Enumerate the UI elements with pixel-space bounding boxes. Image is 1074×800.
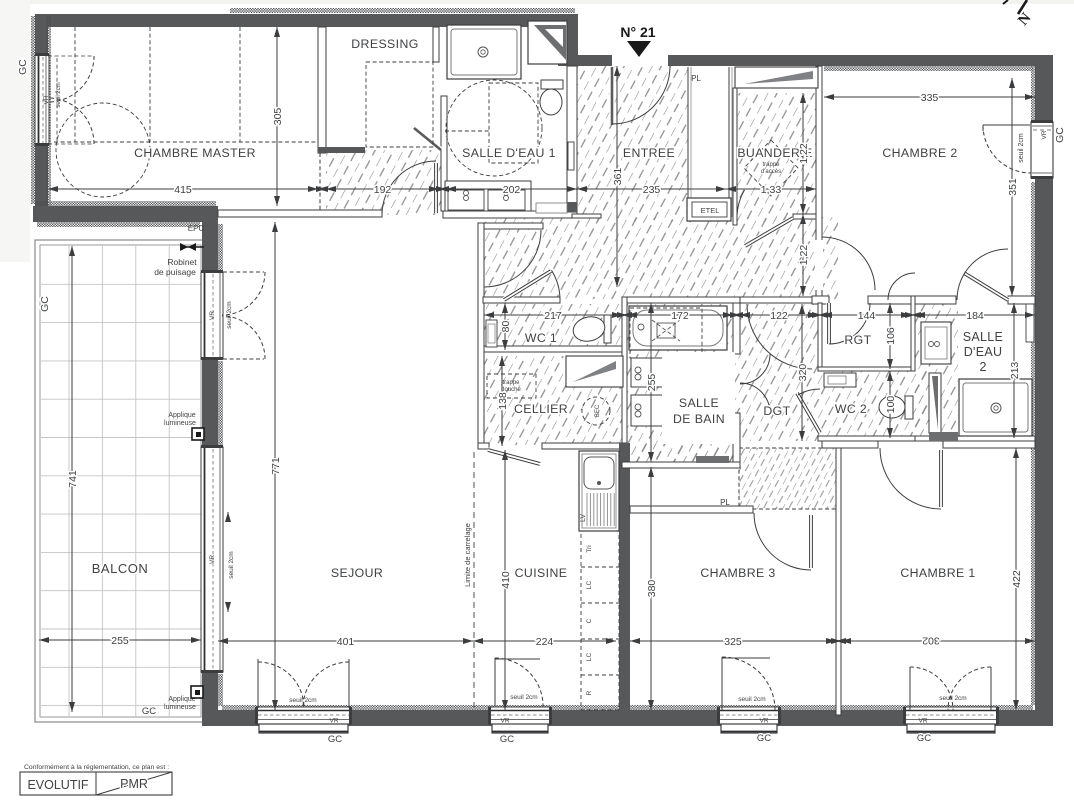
svg-text:CUISINE: CUISINE bbox=[515, 566, 568, 580]
svg-text:BALCON: BALCON bbox=[92, 561, 148, 576]
svg-text:213: 213 bbox=[1009, 362, 1021, 380]
svg-text:SEJOUR: SEJOUR bbox=[331, 566, 383, 580]
svg-text:VR: VR bbox=[918, 718, 927, 725]
svg-text:seuil 2cm: seuil 2cm bbox=[289, 697, 316, 704]
svg-text:224: 224 bbox=[536, 636, 554, 648]
svg-text:172: 172 bbox=[671, 310, 689, 322]
svg-text:ENTREE: ENTREE bbox=[623, 146, 675, 160]
svg-text:seuil 2cm: seuil 2cm bbox=[228, 551, 235, 578]
svg-text:320: 320 bbox=[797, 364, 809, 382]
svg-text:305: 305 bbox=[272, 108, 284, 126]
svg-text:410: 410 bbox=[500, 571, 512, 589]
svg-text:GC: GC bbox=[1054, 127, 1066, 143]
svg-text:1,22: 1,22 bbox=[798, 245, 810, 266]
svg-text:lumineuse: lumineuse bbox=[164, 704, 196, 711]
svg-text:GC: GC bbox=[39, 296, 51, 312]
svg-text:361: 361 bbox=[612, 168, 624, 186]
svg-text:ETEL: ETEL bbox=[701, 206, 720, 215]
svg-text:100: 100 bbox=[885, 396, 897, 414]
svg-text:380: 380 bbox=[646, 580, 658, 598]
svg-text:422: 422 bbox=[1011, 570, 1023, 588]
svg-text:SALLE D'EAU 1: SALLE D'EAU 1 bbox=[462, 146, 556, 160]
svg-text:douche: douche bbox=[501, 387, 521, 393]
svg-text:106: 106 bbox=[885, 327, 897, 345]
svg-text:PL: PL bbox=[720, 498, 730, 507]
svg-text:VR: VR bbox=[329, 718, 338, 725]
svg-text:VR: VR bbox=[759, 718, 768, 725]
svg-text:Limite de carrelage: Limite de carrelage bbox=[463, 523, 472, 587]
svg-text:EPC: EPC bbox=[188, 224, 205, 233]
svg-text:741: 741 bbox=[67, 470, 79, 488]
svg-text:BEC: BEC bbox=[595, 404, 601, 417]
svg-text:PL: PL bbox=[691, 74, 701, 83]
svg-text:184: 184 bbox=[966, 310, 984, 322]
svg-text:80: 80 bbox=[500, 321, 512, 333]
svg-text:LC: LC bbox=[586, 653, 593, 662]
svg-text:SALLE: SALLE bbox=[679, 396, 719, 410]
svg-text:seuil 2cm: seuil 2cm bbox=[939, 695, 966, 702]
svg-text:GC: GC bbox=[17, 59, 29, 75]
svg-text:d'accès: d'accès bbox=[761, 169, 781, 175]
svg-text:192: 192 bbox=[374, 184, 392, 196]
svg-text:401: 401 bbox=[337, 636, 355, 648]
svg-text:GC: GC bbox=[328, 734, 342, 745]
svg-text:GC: GC bbox=[142, 706, 156, 717]
svg-text:771: 771 bbox=[270, 457, 282, 475]
svg-text:335: 335 bbox=[921, 92, 939, 104]
svg-text:DGT: DGT bbox=[763, 404, 790, 418]
svg-text:de puisage: de puisage bbox=[154, 267, 196, 277]
svg-text:GC: GC bbox=[757, 733, 771, 744]
svg-text:trappe: trappe bbox=[762, 162, 780, 168]
svg-text:GC: GC bbox=[500, 734, 514, 745]
svg-text:WC 1: WC 1 bbox=[525, 331, 557, 345]
svg-text:GC: GC bbox=[917, 733, 931, 744]
svg-text:RGT: RGT bbox=[844, 333, 871, 347]
svg-text:138: 138 bbox=[497, 392, 509, 410]
svg-text:N° 21: N° 21 bbox=[620, 24, 655, 40]
svg-text:lumineuse: lumineuse bbox=[164, 420, 196, 427]
svg-text:seuil 2cm: seuil 2cm bbox=[1018, 133, 1025, 163]
svg-text:SALLE: SALLE bbox=[963, 330, 1003, 344]
svg-text:VR: VR bbox=[43, 95, 50, 104]
svg-text:VR: VR bbox=[209, 311, 216, 320]
svg-text:EVOLUTIF: EVOLUTIF bbox=[27, 778, 88, 792]
svg-text:WC 2: WC 2 bbox=[835, 402, 867, 416]
svg-text:DRESSING: DRESSING bbox=[351, 37, 418, 51]
svg-text:351: 351 bbox=[1007, 178, 1019, 196]
svg-text:VR: VR bbox=[1041, 130, 1048, 139]
svg-text:CHAMBRE 2: CHAMBRE 2 bbox=[882, 146, 957, 160]
svg-text:CHAMBRE 1: CHAMBRE 1 bbox=[900, 566, 975, 580]
svg-text:255: 255 bbox=[646, 374, 658, 392]
svg-text:seuil 2cm: seuil 2cm bbox=[510, 694, 537, 701]
svg-text:VR: VR bbox=[209, 555, 216, 564]
svg-text:1,33: 1,33 bbox=[761, 184, 782, 196]
svg-text:trappe: trappe bbox=[502, 380, 520, 386]
svg-text:302: 302 bbox=[922, 635, 940, 647]
svg-text:255: 255 bbox=[111, 635, 129, 647]
svg-text:Applique: Applique bbox=[168, 412, 195, 419]
svg-text:415: 415 bbox=[174, 184, 192, 196]
svg-text:CHAMBRE 3: CHAMBRE 3 bbox=[700, 566, 775, 580]
svg-text:144: 144 bbox=[858, 310, 876, 322]
svg-text:DE BAIN: DE BAIN bbox=[673, 412, 725, 426]
svg-text:LV: LV bbox=[580, 514, 587, 522]
svg-text:C: C bbox=[586, 618, 593, 623]
svg-text:235: 235 bbox=[643, 184, 661, 196]
svg-text:Tri: Tri bbox=[586, 545, 593, 552]
svg-text:325: 325 bbox=[724, 636, 742, 648]
svg-text:VR: VR bbox=[500, 718, 509, 725]
svg-text:R: R bbox=[586, 690, 593, 695]
svg-text:1,22: 1,22 bbox=[798, 143, 810, 164]
svg-text:Robinet: Robinet bbox=[167, 257, 197, 267]
svg-text:2: 2 bbox=[980, 360, 987, 374]
svg-text:CHAMBRE MASTER: CHAMBRE MASTER bbox=[134, 146, 256, 160]
svg-text:seuil 2cm: seuil 2cm bbox=[738, 696, 765, 703]
svg-text:Conformément à la réglementati: Conformément à la réglementation, ce pla… bbox=[24, 764, 169, 771]
svg-text:seuil 2cm: seuil 2cm bbox=[226, 301, 233, 328]
svg-text:202: 202 bbox=[503, 184, 521, 196]
svg-text:122: 122 bbox=[770, 310, 788, 322]
svg-text:LC: LC bbox=[586, 581, 593, 590]
svg-text:CELLIER: CELLIER bbox=[514, 402, 568, 416]
svg-text:PMR: PMR bbox=[120, 777, 148, 791]
svg-text:D'EAU: D'EAU bbox=[964, 345, 1003, 359]
svg-text:217: 217 bbox=[544, 310, 562, 322]
